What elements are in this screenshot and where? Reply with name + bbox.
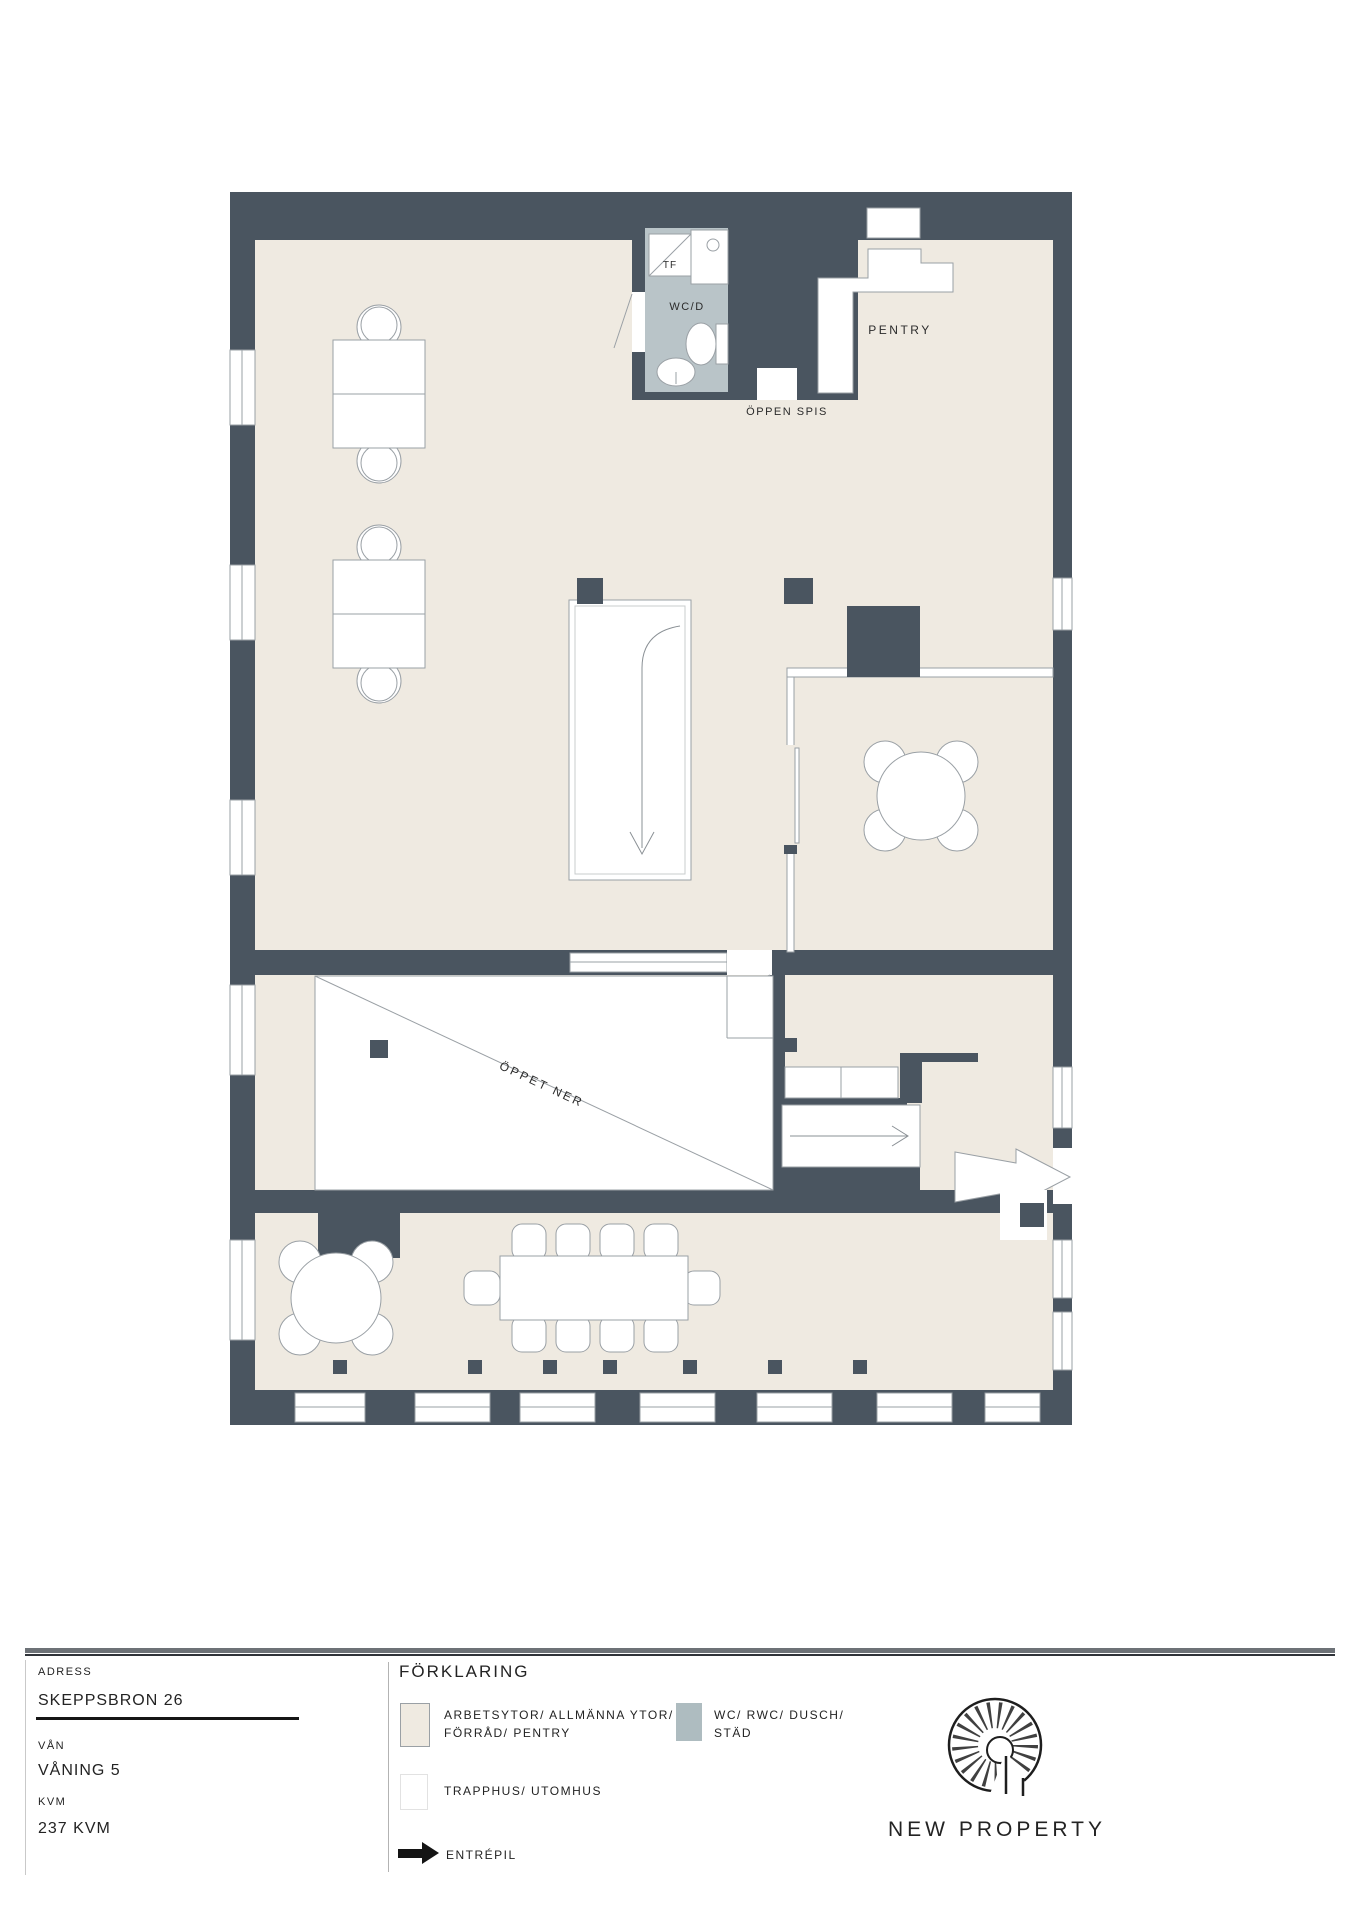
sink-icon — [691, 230, 728, 284]
door-opening — [727, 950, 772, 975]
chair — [600, 1316, 634, 1352]
wall-stair-top — [900, 1053, 978, 1062]
legend-label-entry: ENTRÉPIL — [446, 1846, 517, 1864]
window — [230, 800, 255, 875]
tf-label: TF — [663, 260, 677, 271]
pillar — [683, 1360, 697, 1374]
floor-plan: TF WC/D ÖPPEN SPIS PENTRY — [0, 0, 1358, 1600]
round-table — [877, 752, 965, 840]
entry-arrow-head-icon — [422, 1842, 439, 1864]
legend-label-stairwell: TRAPPHUS/ UTOMHUS — [444, 1782, 602, 1800]
wall-nub — [785, 1038, 797, 1052]
entry-arrow-icon — [398, 1849, 422, 1858]
legend-label-workspace: ARBETSYTOR/ ALLMÄNNA YTOR/FÖRRÅD/ PENTRY — [444, 1706, 674, 1742]
legend-label-wet-line1: WC/ RWC/ DUSCH/ — [714, 1708, 844, 1722]
pillar — [768, 1360, 782, 1374]
open-to-below: ÖPPET NER — [315, 976, 773, 1190]
window — [295, 1393, 365, 1422]
glass-wall-nub — [784, 845, 797, 854]
area-label: KVM — [38, 1796, 66, 1808]
window — [230, 1240, 255, 1340]
pillar — [853, 1360, 867, 1374]
pillar — [468, 1360, 482, 1374]
address-label: ADRESS — [38, 1666, 92, 1678]
pillar — [543, 1360, 557, 1374]
wcd-label: WC/D — [669, 301, 704, 313]
window — [520, 1393, 595, 1422]
info-bar-divider — [388, 1662, 389, 1872]
legend-swatch-stairwell — [400, 1774, 428, 1810]
stair-outline — [569, 600, 691, 880]
legend-label-workspace-line1: ARBETSYTOR/ ALLMÄNNA YTOR/ — [444, 1708, 674, 1722]
info-bar-rule — [25, 1648, 1335, 1656]
window — [230, 350, 255, 425]
brand-name: NEW PROPERTY — [888, 1818, 1106, 1842]
fireplace-niche — [757, 368, 797, 400]
chair — [512, 1224, 546, 1260]
window — [230, 565, 255, 640]
address-value: SKEPPSBRON 26 — [38, 1692, 184, 1710]
round-table-set — [279, 1241, 393, 1355]
wall-under-landing — [770, 1167, 920, 1190]
washbasin-icon — [657, 358, 695, 386]
pillar-small — [370, 1040, 388, 1058]
chair-inner — [361, 307, 397, 343]
chair — [600, 1224, 634, 1260]
pillar — [603, 1360, 617, 1374]
window — [230, 985, 255, 1075]
chair — [464, 1271, 500, 1305]
chair — [684, 1271, 720, 1305]
floorplan-page: { "plan": { "labels": { "tf": "TF", "wcd… — [0, 0, 1358, 1920]
pillar-large — [847, 606, 920, 677]
window — [1053, 1240, 1072, 1298]
dining-table — [500, 1256, 688, 1320]
window — [1053, 1067, 1072, 1128]
wall-under-void — [230, 1190, 1072, 1213]
pillar-small — [784, 578, 813, 604]
spiral-staircase-icon — [920, 1690, 1070, 1810]
area-value: 237 KVM — [38, 1820, 111, 1838]
chair-inner — [361, 665, 397, 701]
central-staircase — [569, 600, 691, 880]
round-table-set — [864, 741, 978, 851]
window — [1053, 578, 1072, 630]
pentry-label: PENTRY — [868, 323, 931, 337]
legend-label-wet-line2: STÄD — [714, 1726, 752, 1740]
chair — [556, 1316, 590, 1352]
chair — [512, 1316, 546, 1352]
round-table — [291, 1253, 381, 1343]
legend-title: FÖRKLARING — [399, 1662, 530, 1682]
window-interior — [570, 953, 727, 972]
chair-inner — [361, 445, 397, 481]
pillar-small — [1020, 1203, 1044, 1227]
pentry-niche — [867, 208, 920, 238]
legend-label-workspace-line2: FÖRRÅD/ PENTRY — [444, 1726, 571, 1740]
pillar — [333, 1360, 347, 1374]
chair — [644, 1224, 678, 1260]
window — [640, 1393, 715, 1422]
window — [415, 1393, 490, 1422]
wall-stair-ledge — [776, 1098, 907, 1105]
window — [757, 1393, 832, 1422]
chair — [556, 1224, 590, 1260]
glass-door-leaf — [795, 748, 799, 843]
toilet-icon — [686, 323, 728, 365]
legend-label-wet: WC/ RWC/ DUSCH/STÄD — [714, 1706, 844, 1742]
address-underline — [36, 1717, 299, 1720]
floor-value: VÅNING 5 — [38, 1762, 121, 1780]
window — [877, 1393, 952, 1422]
legend-swatch-wet — [676, 1703, 702, 1741]
chair-inner — [361, 527, 397, 563]
window — [985, 1393, 1040, 1422]
info-bar-left-edge — [25, 1660, 26, 1875]
oppen-spis-label: ÖPPEN SPIS — [746, 406, 828, 418]
window — [1053, 1312, 1072, 1370]
legend-swatch-workspace — [400, 1703, 430, 1747]
floor-label: VÅN — [38, 1740, 65, 1752]
chair — [644, 1316, 678, 1352]
pillar-small — [577, 578, 603, 604]
